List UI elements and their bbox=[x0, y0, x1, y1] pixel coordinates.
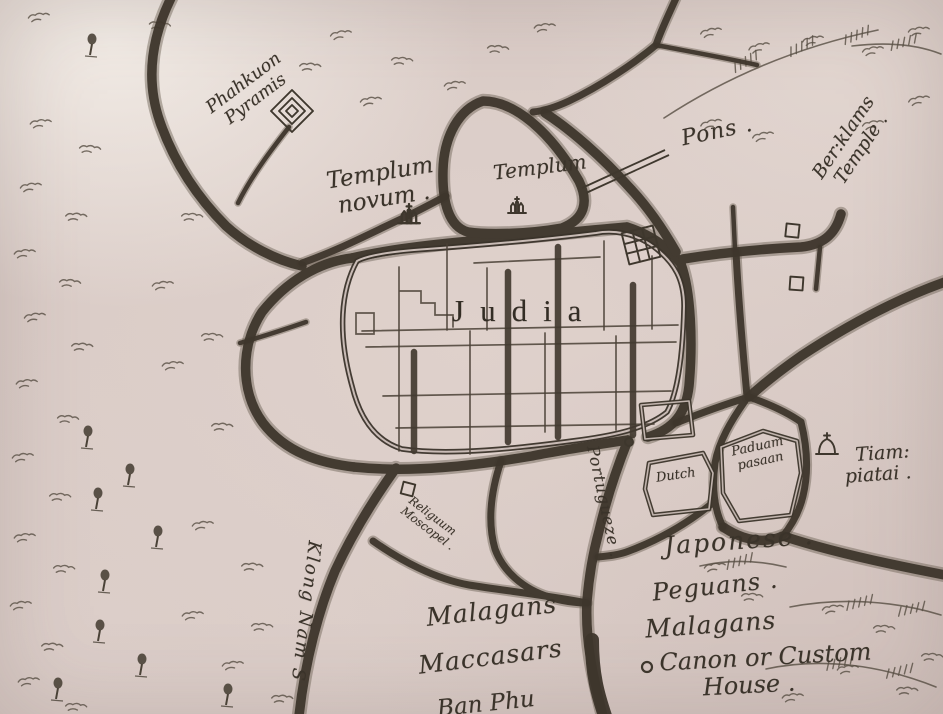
customhouse-circle bbox=[642, 662, 652, 672]
map-canvas: Phahkuon Pyramis Templum novum . Templum… bbox=[0, 0, 943, 714]
dome-icon bbox=[816, 433, 838, 454]
label-tiam-piatai: Tiam: piatai . bbox=[855, 441, 913, 487]
label-judia-city: Judia bbox=[452, 294, 597, 329]
temple-icon bbox=[508, 197, 526, 213]
terrain-trees bbox=[51, 34, 233, 708]
label-canon-custom-house: Canon or Custom House . bbox=[659, 638, 874, 703]
city-streets bbox=[356, 241, 678, 454]
